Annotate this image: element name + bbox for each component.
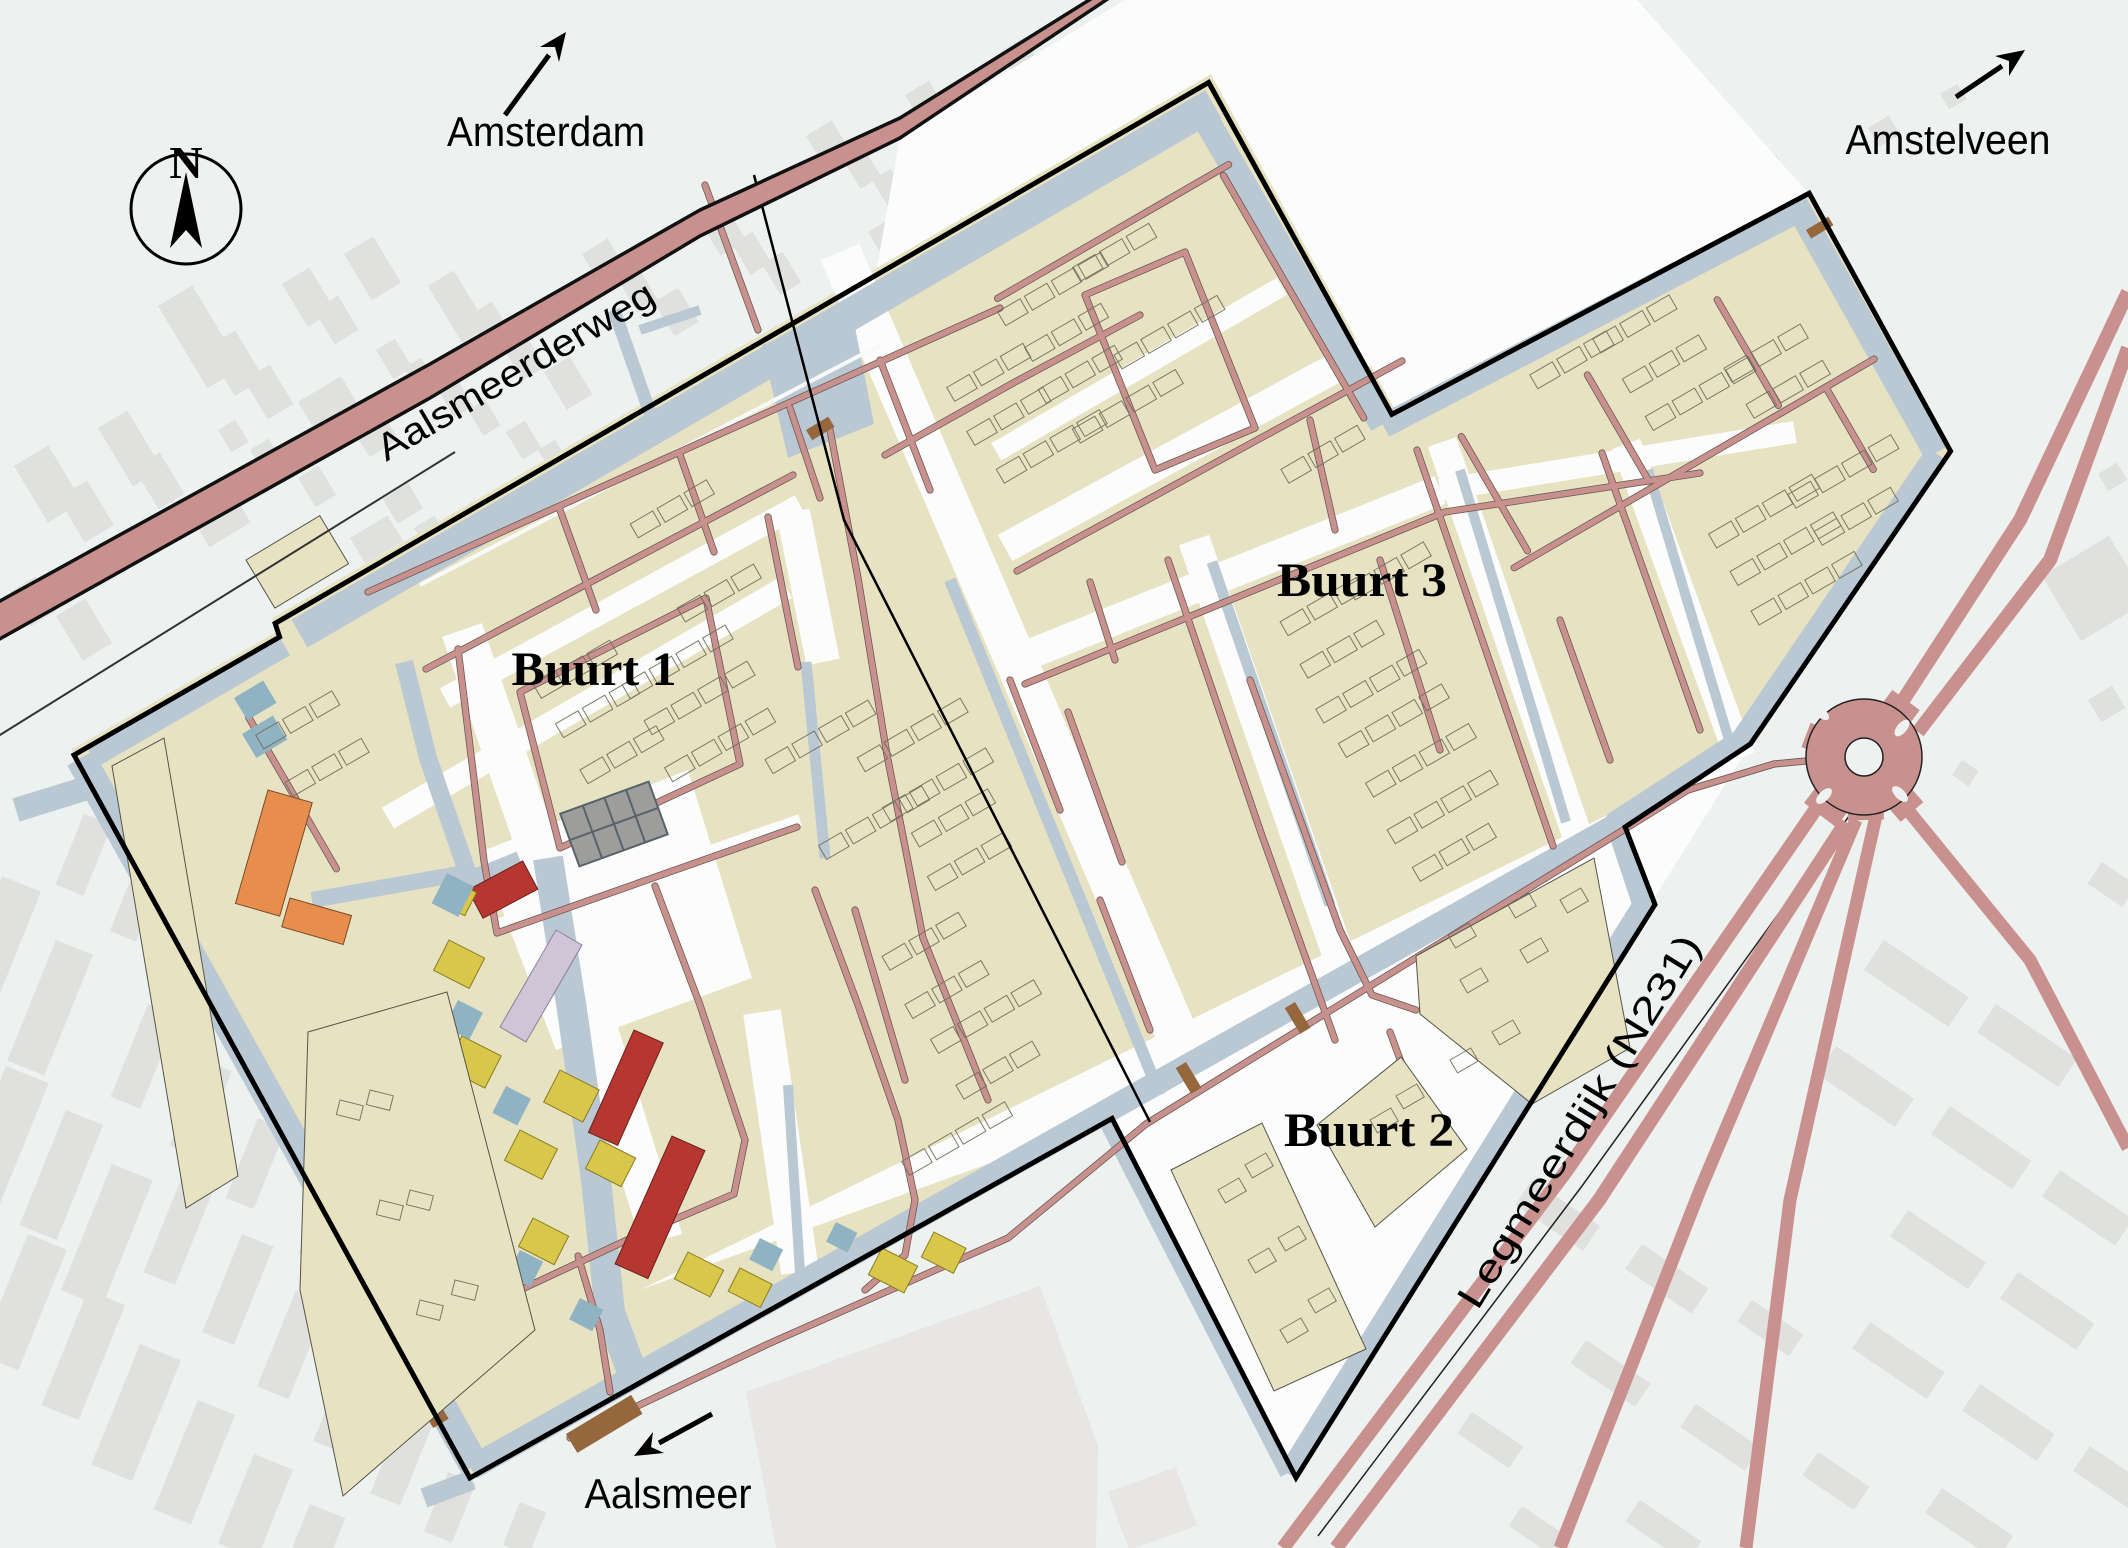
svg-text:Amsterdam: Amsterdam bbox=[447, 108, 645, 155]
svg-text:Buurt 1: Buurt 1 bbox=[512, 643, 677, 696]
svg-text:Buurt 2: Buurt 2 bbox=[1284, 1104, 1454, 1157]
svg-text:Aalsmeer: Aalsmeer bbox=[585, 1470, 752, 1517]
svg-text:Buurt 3: Buurt 3 bbox=[1277, 554, 1447, 607]
svg-text:Amstelveen: Amstelveen bbox=[1846, 116, 2051, 163]
